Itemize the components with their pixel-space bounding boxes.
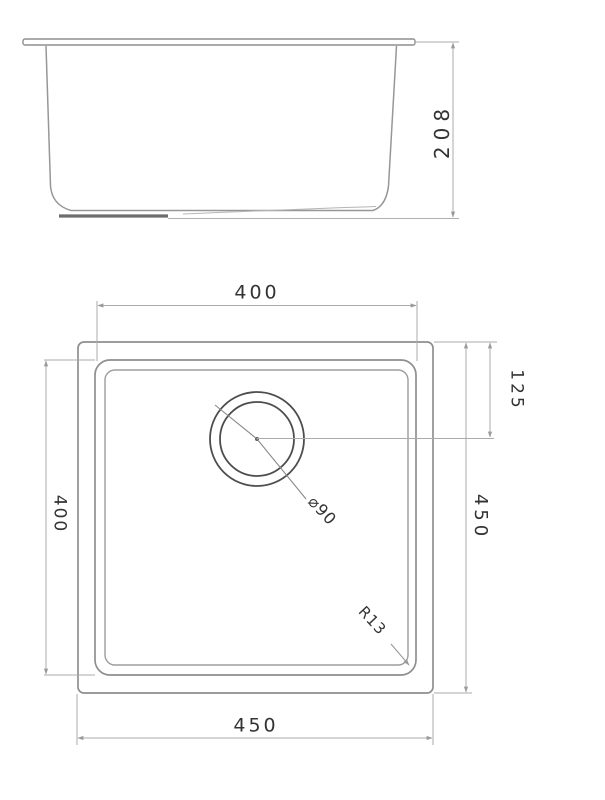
outer-rim-outline [78, 342, 433, 693]
side-view [23, 39, 459, 219]
dim-label-side-height: 208 [432, 103, 452, 159]
dim-label-bottom-width: 450 [233, 717, 278, 736]
sink-technical-drawing: 208 400 400 450 450 125 ⌀90 R13 [0, 0, 605, 800]
dim-label-drain-offset: 125 [508, 369, 525, 410]
dim-label-top-width: 400 [234, 284, 279, 303]
corner-radius-leader [391, 644, 409, 665]
plan-view [44, 301, 497, 745]
dim-label-left-height: 400 [51, 495, 68, 533]
dim-label-right-height: 450 [471, 494, 489, 540]
rim-flange-outline [23, 39, 415, 45]
sink-body-outline [46, 46, 397, 211]
